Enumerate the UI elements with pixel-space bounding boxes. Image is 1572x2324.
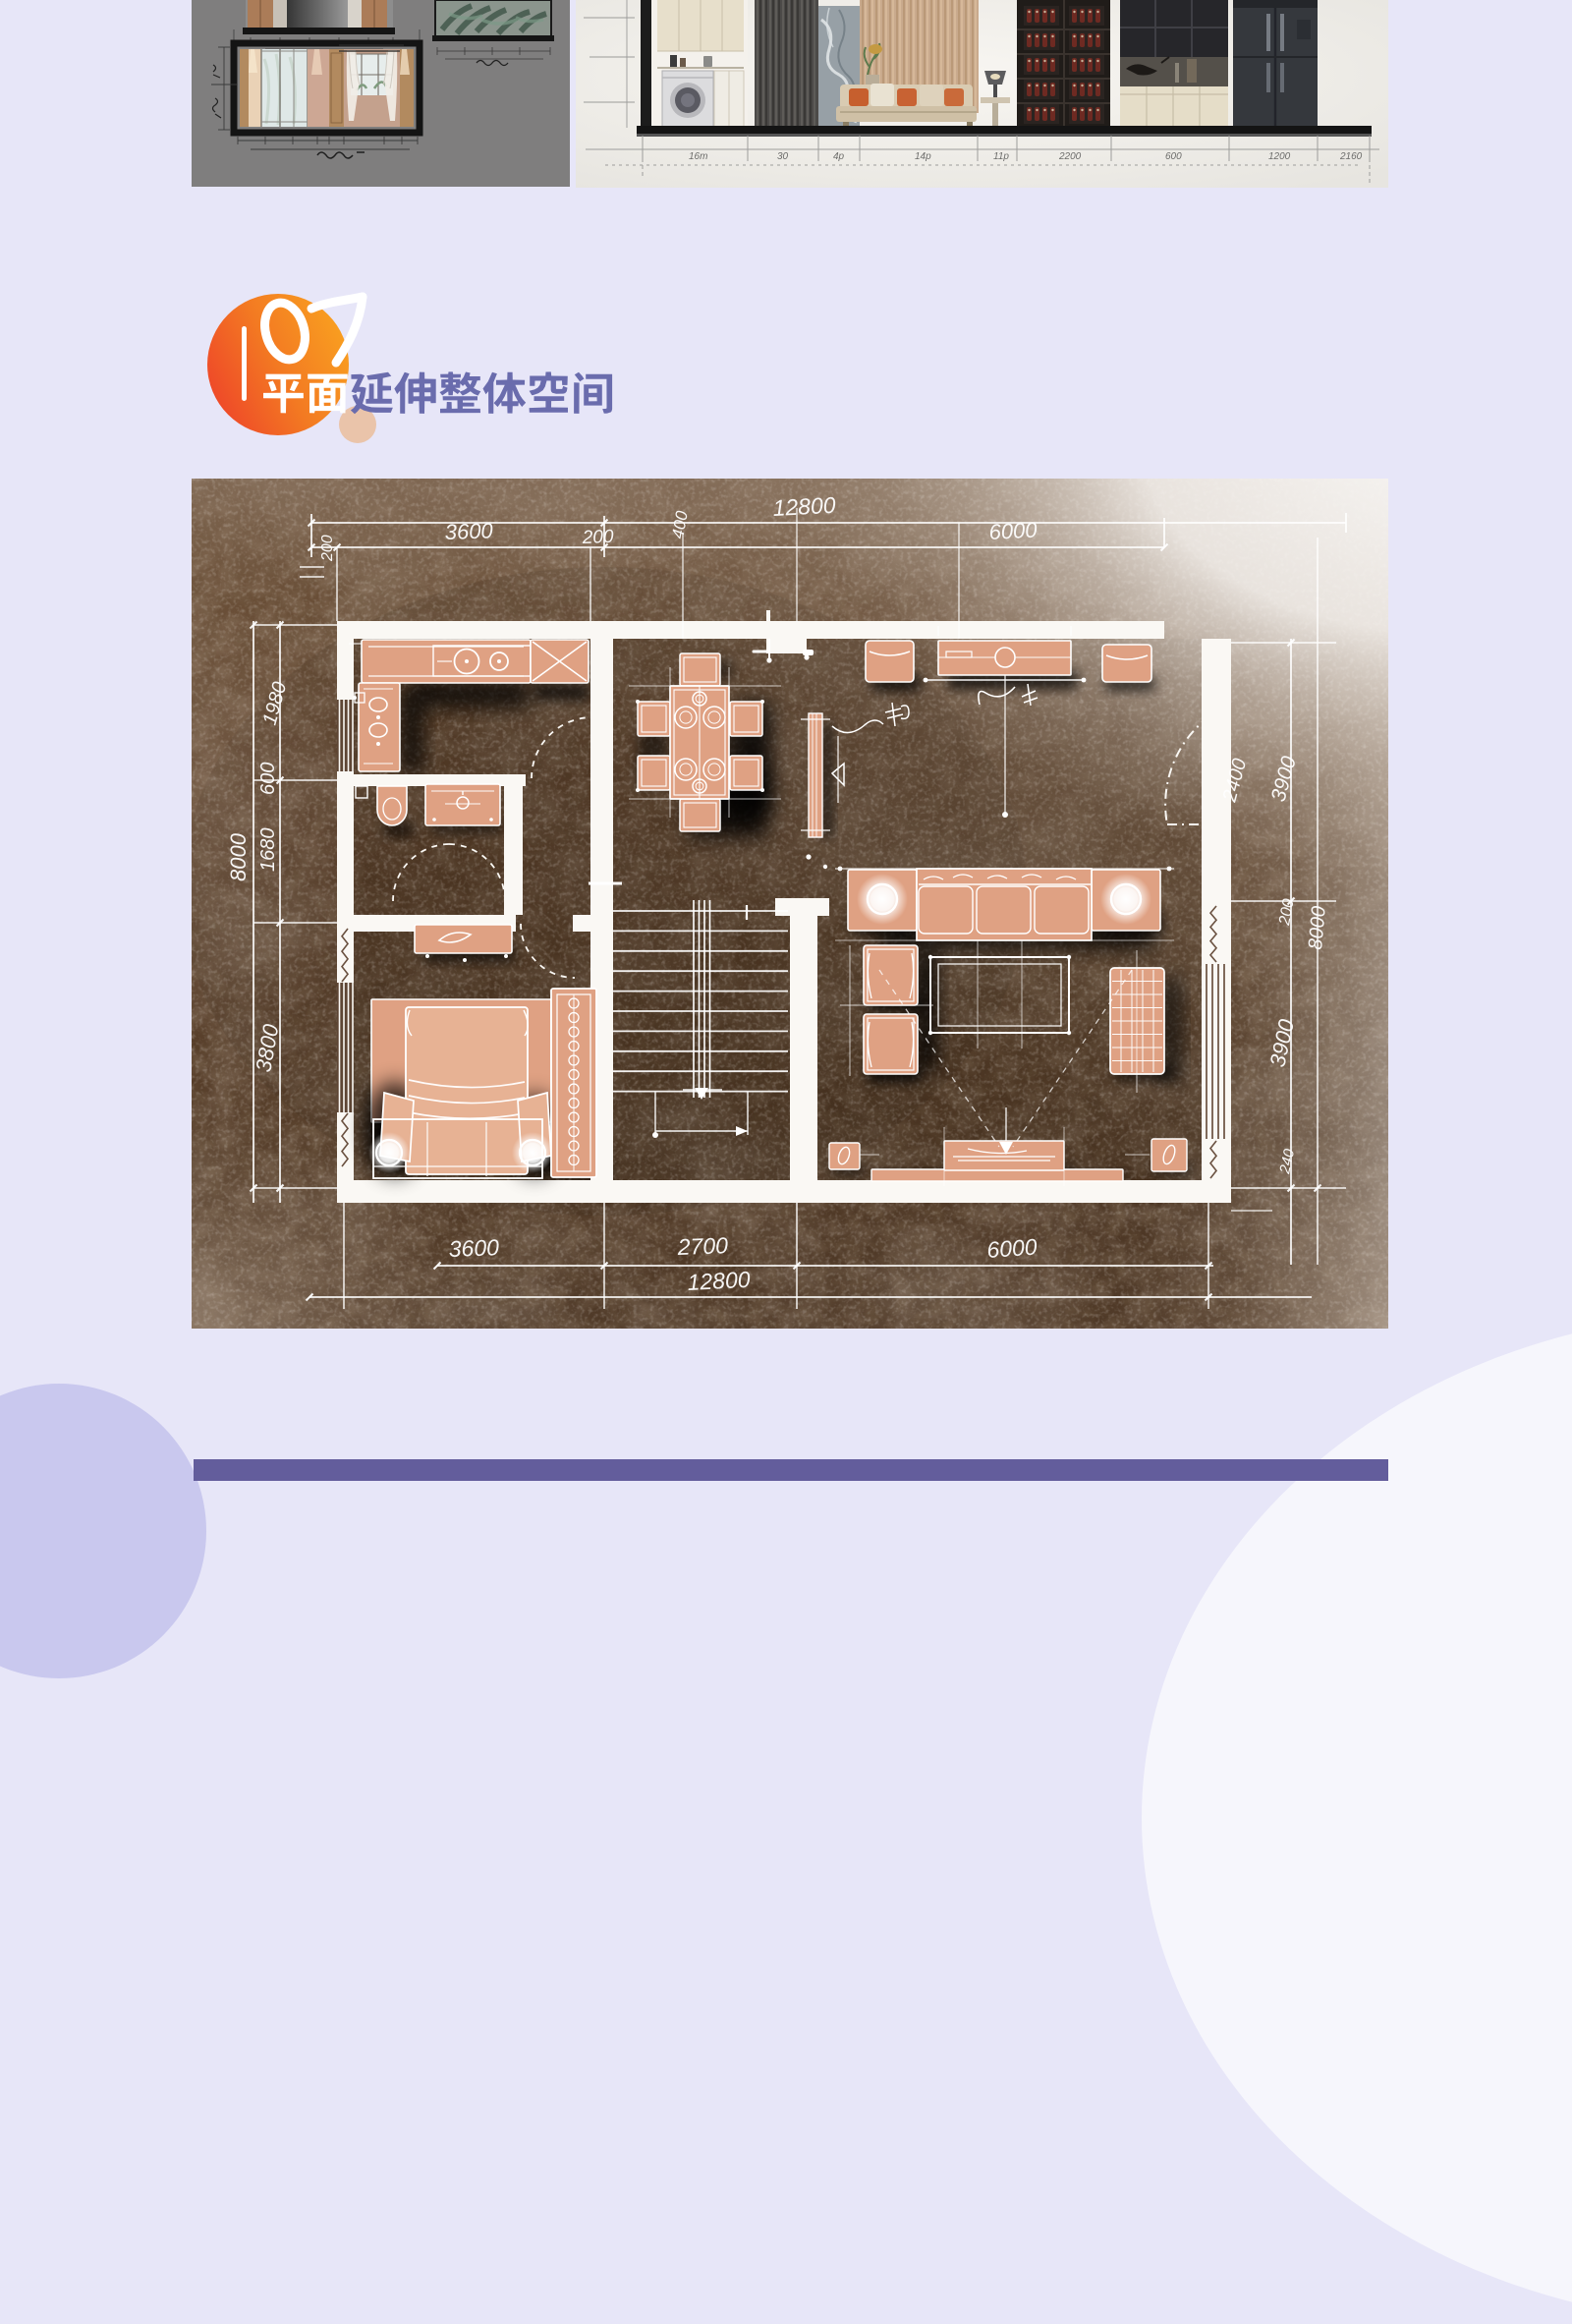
svg-text:600: 600: [257, 763, 279, 795]
svg-text:3600: 3600: [444, 518, 494, 544]
svg-text:8000: 8000: [226, 832, 251, 881]
svg-text:2160: 2160: [1339, 151, 1363, 162]
svg-text:200: 200: [581, 527, 614, 548]
svg-text:12800: 12800: [687, 1267, 751, 1295]
svg-text:3600: 3600: [448, 1234, 499, 1262]
svg-text:4p: 4p: [833, 151, 845, 162]
svg-text:12800: 12800: [772, 492, 836, 521]
svg-text:2700: 2700: [676, 1232, 728, 1260]
svg-text:2200: 2200: [1058, 151, 1082, 162]
svg-text:8000: 8000: [1305, 905, 1330, 950]
svg-text:1680: 1680: [257, 828, 279, 873]
svg-text:6000: 6000: [986, 1233, 1039, 1263]
svg-text:1200: 1200: [1268, 151, 1291, 162]
svg-text:200: 200: [319, 535, 336, 562]
svg-text:14p: 14p: [915, 151, 931, 162]
svg-text:600: 600: [1165, 151, 1182, 162]
svg-text:16m: 16m: [689, 151, 707, 162]
svg-text:11p: 11p: [993, 151, 1009, 162]
svg-text:6000: 6000: [988, 517, 1039, 544]
svg-text:30: 30: [777, 151, 789, 162]
